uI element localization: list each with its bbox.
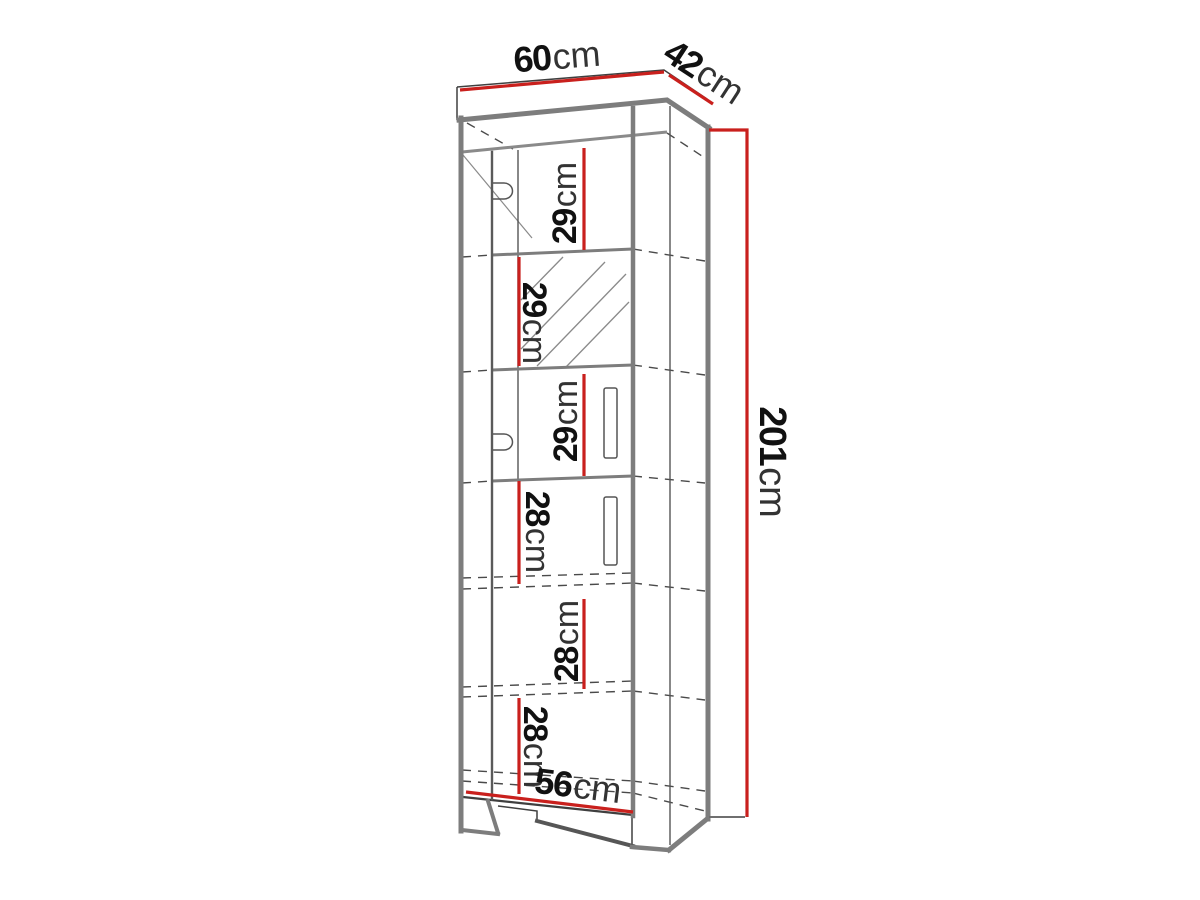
dim-unit: cm (517, 319, 551, 364)
dim-value: 29 (549, 427, 583, 462)
top-right-receding (667, 133, 705, 158)
dim-unit: cm (520, 528, 554, 573)
dim-label-section-5: 28cm (550, 600, 584, 682)
shelf5-hidden-b (462, 691, 633, 697)
dim-label-height: 201cm (753, 406, 791, 518)
shelf2-right-face (633, 365, 705, 375)
dim-line-height (709, 130, 747, 817)
glass-hatch-3 (566, 302, 629, 367)
right-foot-diagonal (669, 819, 707, 850)
upper-left-handle-cutout-icon (493, 183, 513, 199)
dim-label-top-width: 60cm (512, 36, 602, 79)
dim-value: 28 (520, 491, 554, 526)
dim-label-section-1: 29cm (548, 162, 582, 244)
bottom-right-face-b (633, 793, 705, 811)
lower-left-handle-cutout-icon (493, 434, 513, 450)
dim-unit: cm (548, 162, 582, 207)
shelf4-right-face (633, 583, 705, 591)
shelf4-hidden-a (462, 573, 633, 578)
dim-value: 28 (550, 647, 584, 682)
diagram-canvas: 60cm 42cm 201cm 29cm 29cm 29cm 28cm 28cm… (0, 0, 1200, 900)
dim-label-section-2: 29cm (517, 282, 551, 364)
dim-value: 56 (533, 763, 574, 803)
dim-unit: cm (753, 467, 791, 518)
top-interior-diagonal (467, 123, 513, 149)
shelf3-front (492, 476, 633, 481)
dim-label-section-4: 28cm (520, 491, 554, 573)
dim-value: 29 (548, 209, 582, 244)
dim-unit: cm (549, 380, 583, 425)
cabinet-line-drawing (0, 0, 1200, 900)
plinth-top-step (498, 806, 537, 822)
left-foot-bottom (462, 830, 498, 834)
shelf5-right-face (633, 691, 705, 700)
shelf1-right-face (633, 249, 705, 261)
dim-label-bottom-width: 56cm (533, 763, 624, 809)
dim-unit: cm (551, 36, 602, 76)
left-foot-diagonal (488, 801, 498, 833)
dim-unit: cm (550, 600, 584, 645)
lower-door-handle (604, 497, 617, 565)
dim-value: 28 (518, 706, 552, 741)
dim-value: 29 (517, 282, 551, 317)
left-interior-diagonal (463, 155, 532, 238)
dim-value: 60 (512, 40, 552, 79)
interior-ceiling-edge (462, 132, 667, 152)
shelf2-left-stub (462, 370, 492, 372)
dim-unit: cm (571, 768, 623, 810)
dim-label-section-3: 29cm (549, 380, 583, 462)
shelf3-right-face (633, 476, 705, 483)
plinth-recess-edge (537, 821, 633, 846)
upper-door-handle (604, 388, 617, 458)
shelf1-front (492, 249, 633, 255)
bottom-right-face-a (633, 781, 705, 791)
shelf4-hidden-b (462, 583, 633, 589)
shelf3-left-stub (462, 481, 492, 483)
right-foot-bottom (632, 847, 669, 850)
shelf2-front (492, 365, 633, 370)
top-face-edge (459, 100, 709, 128)
shelf1-left-stub (462, 255, 492, 257)
dim-value: 201 (753, 406, 791, 465)
